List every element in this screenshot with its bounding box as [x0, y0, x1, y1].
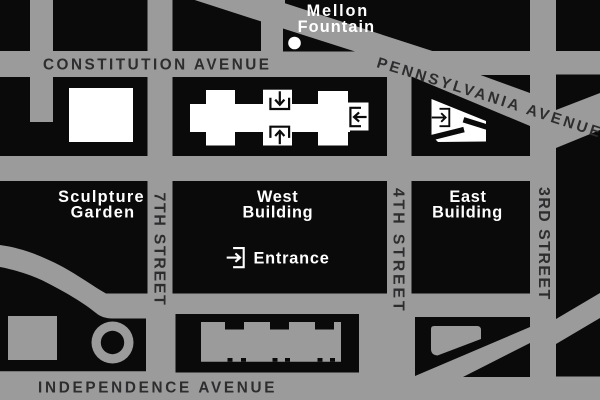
svg-text:7TH STREET: 7TH STREET [150, 193, 167, 307]
svg-text:4TH STREET: 4TH STREET [389, 188, 406, 314]
svg-text:Garden: Garden [71, 204, 136, 222]
svg-text:INDEPENDENCE AVENUE: INDEPENDENCE AVENUE [38, 379, 277, 396]
svg-text:CONSTITUTION AVENUE: CONSTITUTION AVENUE [43, 57, 272, 74]
svg-text:Fountain: Fountain [298, 18, 376, 36]
svg-text:Building: Building [432, 204, 503, 222]
svg-text:Mellon: Mellon [307, 2, 369, 20]
svg-text:Entrance: Entrance [254, 249, 330, 267]
svg-text:3RD STREET: 3RD STREET [535, 187, 552, 301]
svg-text:Building: Building [243, 204, 314, 222]
